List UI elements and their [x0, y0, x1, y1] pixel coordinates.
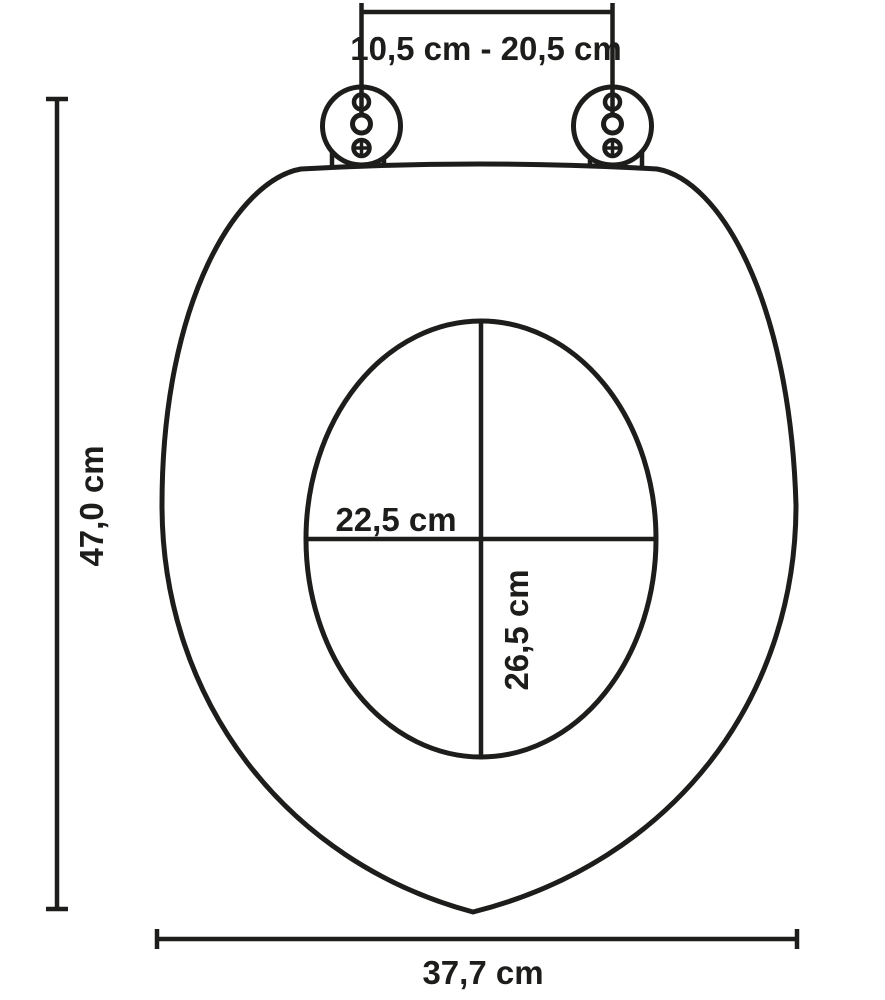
- left-hinge-ring-icon: [353, 115, 371, 133]
- total-length-label: 47,0 cm: [73, 445, 110, 566]
- outer-width-dimension: [157, 929, 797, 949]
- outer-width-label: 37,7 cm: [422, 954, 543, 991]
- inner-width-label: 22,5 cm: [335, 501, 456, 538]
- inner-length-label: 26,5 cm: [498, 569, 535, 690]
- seat-diagram-canvas: 10,5 cm - 20,5 cm 47,0 cm 22,5 cm 26,5 c…: [0, 0, 885, 1000]
- left-hinge: [323, 3, 401, 165]
- total-length-dimension: [46, 99, 68, 909]
- dimension-diagram: 10,5 cm - 20,5 cm 47,0 cm 22,5 cm 26,5 c…: [0, 0, 885, 1000]
- right-hinge-ring-icon: [604, 115, 622, 133]
- right-hinge: [574, 3, 652, 165]
- hinge-spacing-label: 10,5 cm - 20,5 cm: [350, 30, 622, 67]
